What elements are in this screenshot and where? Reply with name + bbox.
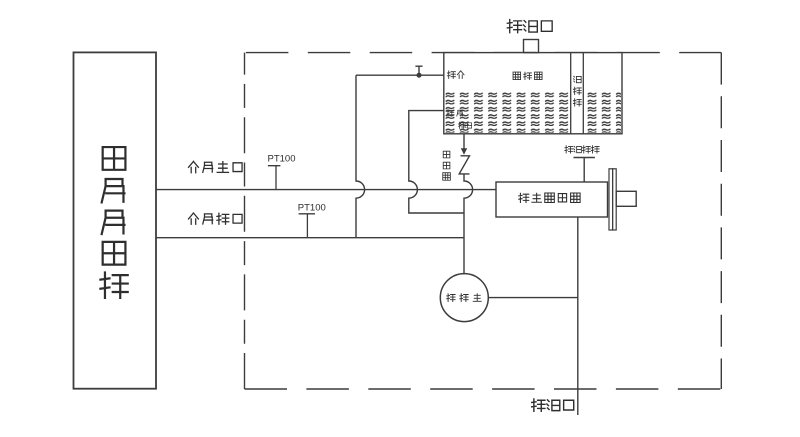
svg-text:PT100: PT100	[298, 202, 326, 213]
svg-text:PT100: PT100	[268, 153, 296, 164]
